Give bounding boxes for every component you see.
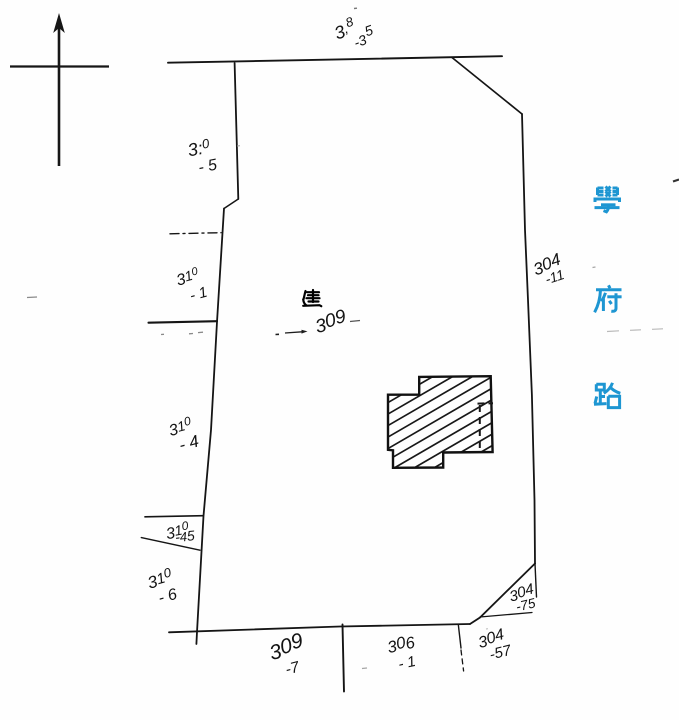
svg-text:3:0: 3:0 [186, 135, 213, 160]
svg-text:- 5: - 5 [197, 156, 219, 176]
svg-text:-45: -45 [174, 527, 195, 545]
svg-text:-75: -75 [514, 595, 537, 614]
svg-text:- 4: - 4 [177, 431, 201, 454]
svg-text:-7: -7 [284, 658, 303, 678]
svg-text:- 1: - 1 [188, 284, 209, 305]
svg-text:309: 309 [312, 306, 349, 338]
svg-text:- 6: - 6 [156, 586, 179, 608]
svg-text:309: 309 [266, 629, 307, 665]
svg-text:- 1: - 1 [397, 653, 418, 673]
